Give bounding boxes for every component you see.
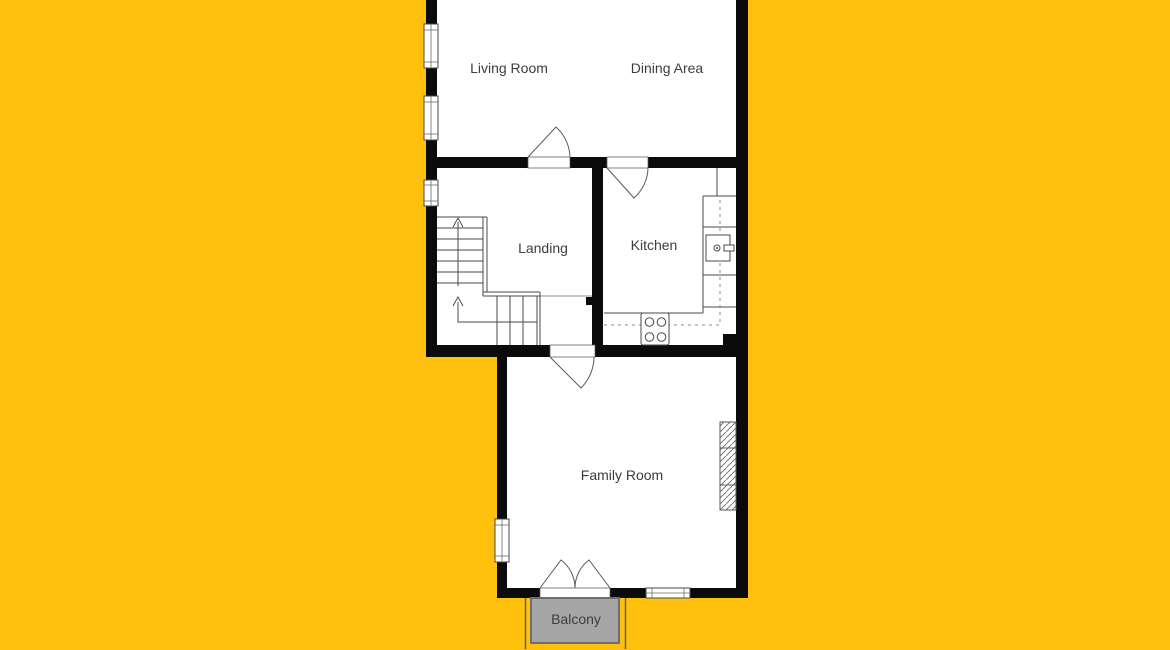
radiator-hatch-symbol — [720, 422, 736, 510]
living-landing-wall — [426, 157, 748, 168]
window-symbol — [424, 24, 438, 68]
living-dining-floor — [437, 0, 736, 157]
floor-plan-canvas: Balcony Living Room Dining Area Landing … — [0, 0, 1170, 650]
window-symbol — [424, 96, 438, 140]
bottom-exterior-wall — [497, 588, 748, 598]
landing-floor — [437, 168, 592, 345]
balcony-label: Balcony — [551, 611, 601, 627]
living-landing-opening — [528, 157, 570, 168]
landing-label: Landing — [518, 240, 568, 256]
kitchen-label: Kitchen — [631, 237, 678, 253]
dining-area-label: Dining Area — [631, 60, 704, 76]
balcony-door-opening — [540, 588, 610, 598]
living-room-label: Living Room — [470, 60, 548, 76]
family-room-label: Family Room — [581, 467, 663, 483]
stove-4-burner-symbol — [641, 313, 669, 345]
dining-kitchen-opening — [607, 157, 648, 168]
window-symbol — [646, 588, 690, 598]
right-exterior-wall — [736, 0, 748, 598]
landing-kitchen-wall — [592, 168, 603, 345]
landing-family-opening — [550, 345, 595, 357]
kitchen-sink-symbol — [706, 235, 734, 261]
window-symbol — [424, 180, 438, 206]
kitchen-corner-pier — [723, 334, 748, 345]
floor-plan-page: Balcony Living Room Dining Area Landing … — [0, 0, 1170, 650]
window-symbol — [495, 519, 509, 562]
balcony: Balcony — [526, 598, 626, 649]
wall-pier — [586, 297, 592, 305]
